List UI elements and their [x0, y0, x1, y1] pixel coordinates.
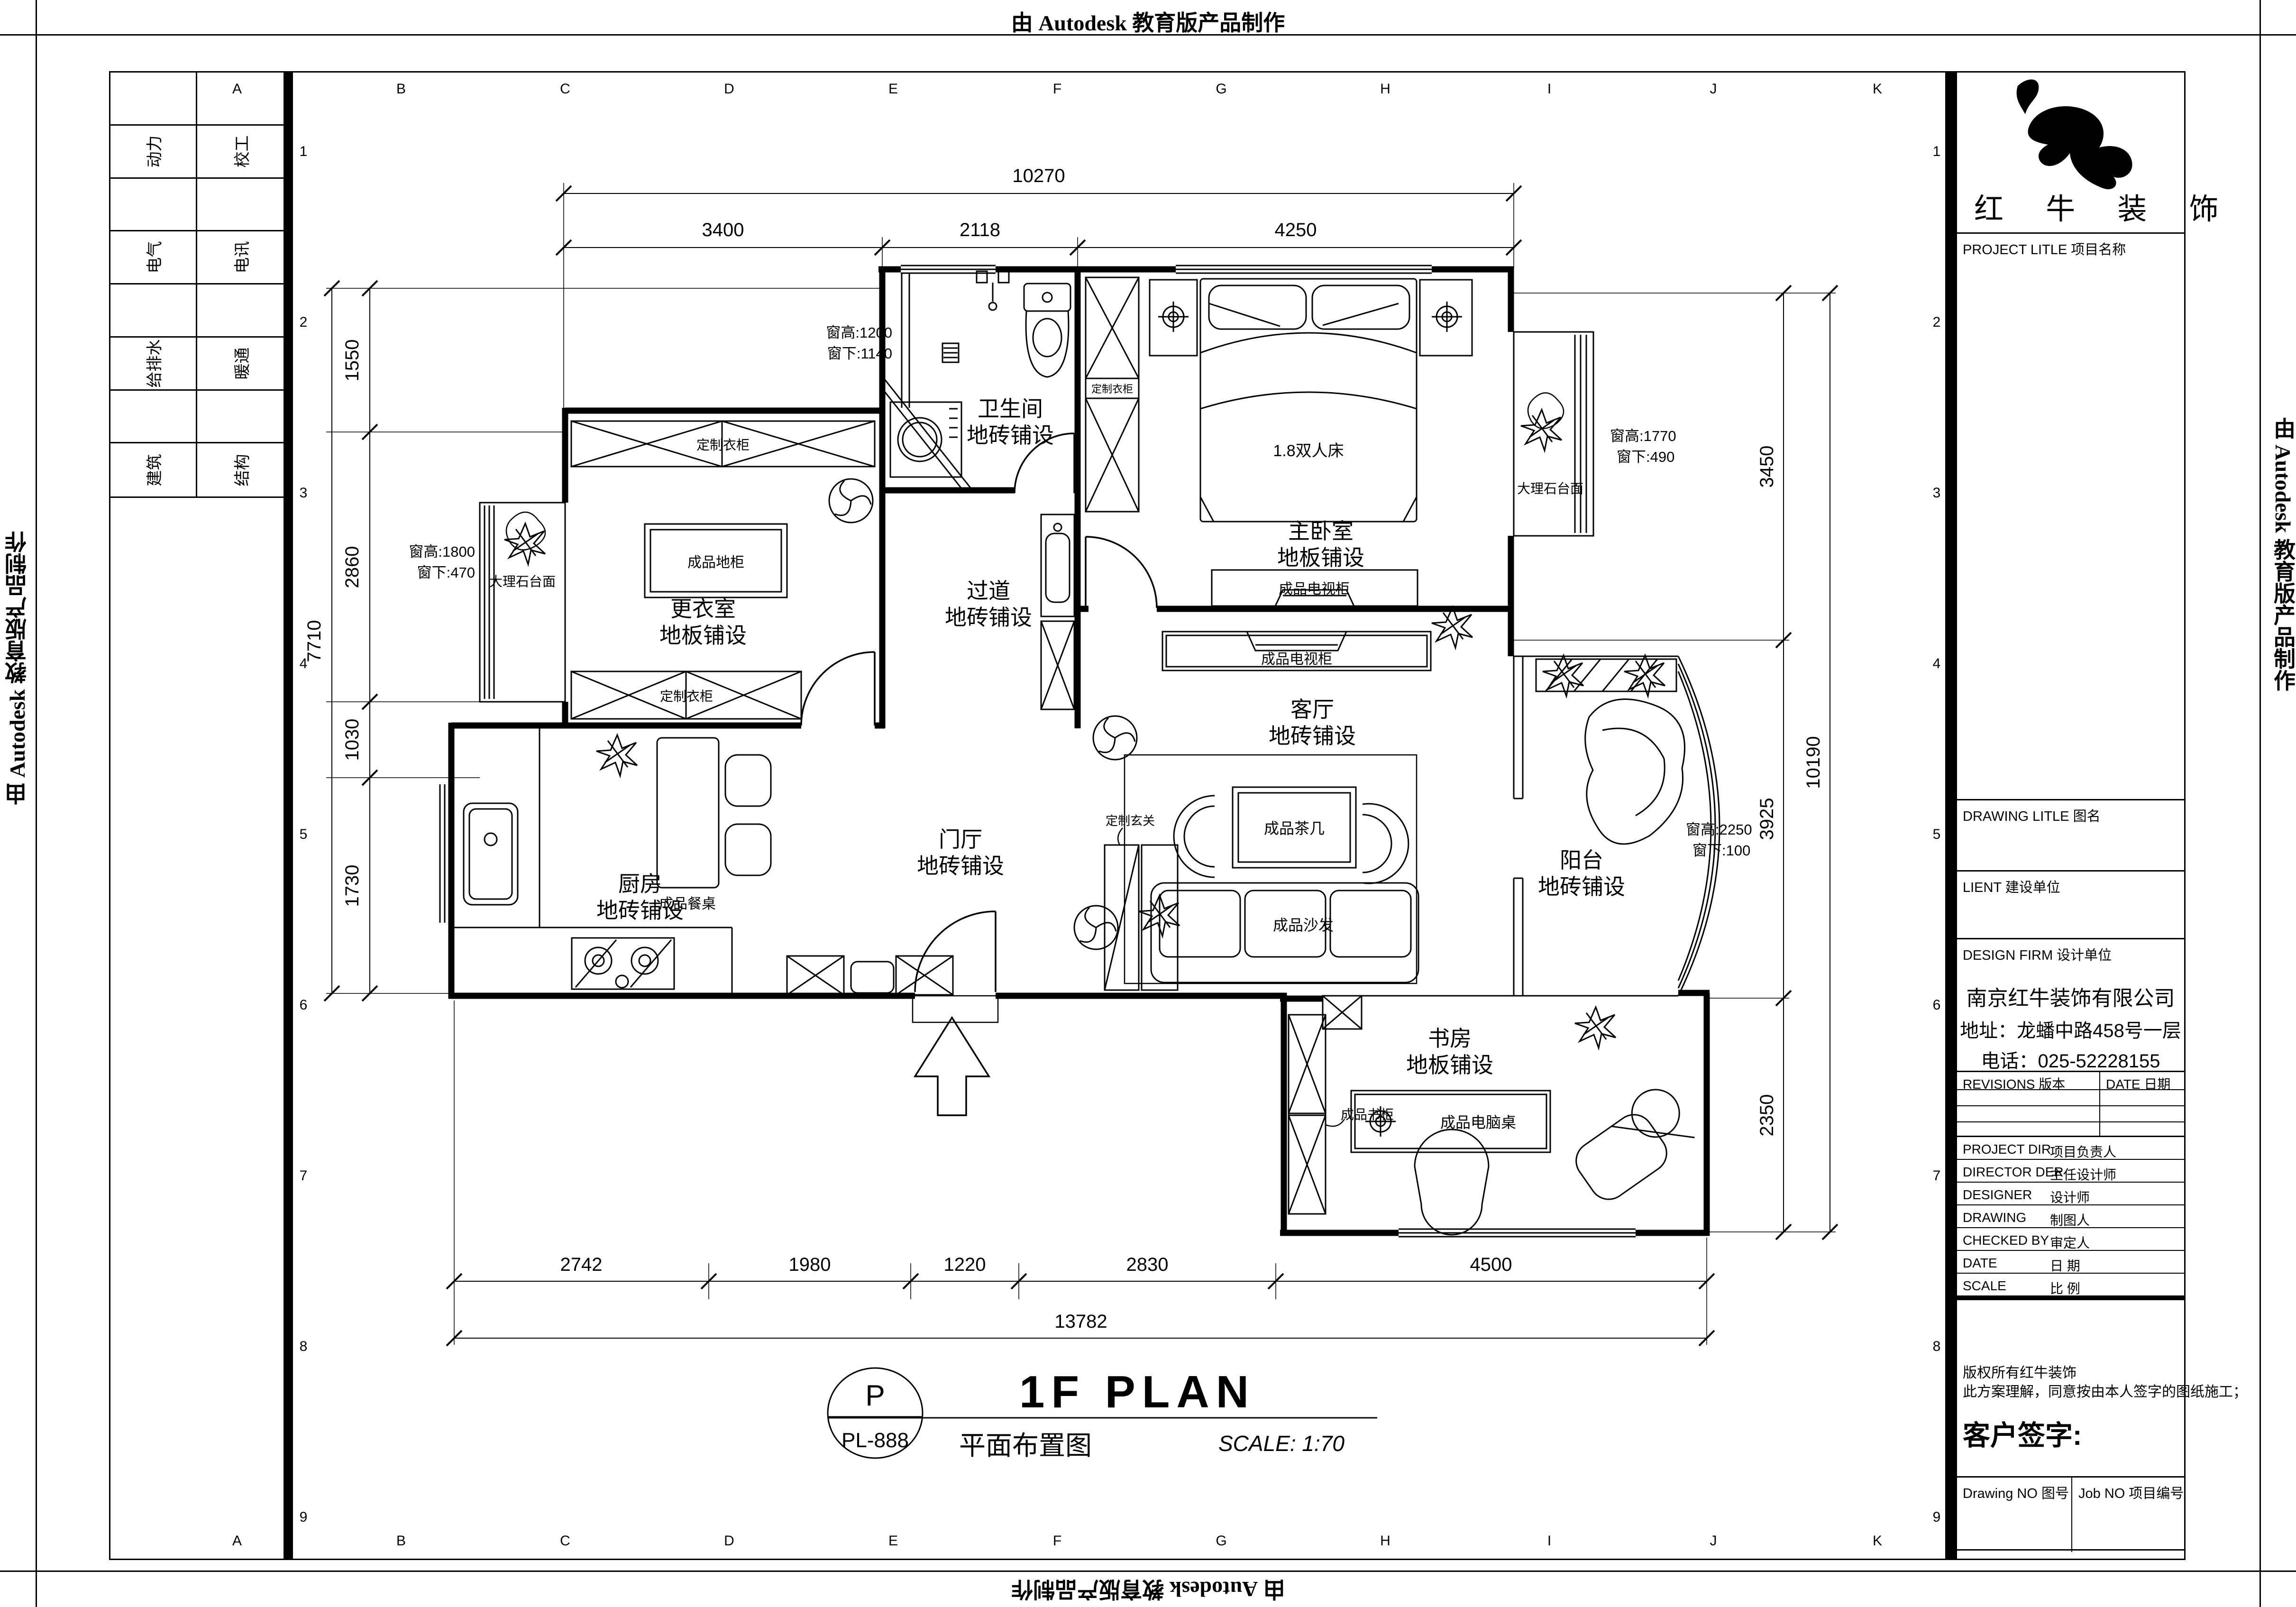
- dim-label: 1220: [944, 1254, 986, 1275]
- room-name: 主卧室: [1288, 519, 1354, 543]
- balcony-door: [1514, 656, 1523, 996]
- kitchen-furniture: [451, 725, 771, 996]
- dim-label: 10190: [1803, 736, 1824, 789]
- window-note: 窗下:100: [1692, 842, 1750, 859]
- furniture-label: 成品书柜: [1341, 1107, 1394, 1122]
- kitchen-window: [440, 784, 449, 923]
- dim-label: 1550: [342, 340, 363, 382]
- lamp-icon: [1432, 302, 1462, 332]
- furniture-label: 成品地柜: [687, 555, 744, 570]
- drawing-title-cn: 平面布置图: [959, 1431, 1092, 1460]
- window-note: 窗下:490: [1617, 449, 1674, 465]
- window-note: 窗高:1770: [1610, 428, 1676, 444]
- room-finish: 地砖铺设: [945, 605, 1032, 630]
- furniture-label: 大理石台面: [1517, 481, 1583, 496]
- window-note: 窗高:1800: [409, 543, 475, 560]
- dimensions-bottom: [454, 1001, 1707, 1345]
- furniture-label: 定制衣柜: [660, 689, 713, 704]
- drawing-title-group: P PL-888 1F PLAN 平面布置图 SCALE: 1:70: [828, 1367, 1377, 1460]
- furniture-label: 成品电脑桌: [1440, 1114, 1516, 1131]
- entry-door: [915, 911, 996, 992]
- dim-label: 1980: [789, 1254, 831, 1275]
- entry-cabinet-leader: [1118, 828, 1123, 845]
- drawing-title-scale: SCALE: 1:70: [1218, 1431, 1345, 1456]
- nightstand-right: [1420, 280, 1472, 356]
- furniture-label: 成品餐桌: [659, 896, 716, 912]
- furniture-label: 定制玄关: [1106, 814, 1155, 828]
- dining-chair: [725, 755, 771, 806]
- dim-label: 3450: [1756, 446, 1777, 488]
- entry-arrow: [915, 1018, 989, 1115]
- dressing-door: [801, 652, 875, 725]
- entry-bench: [851, 962, 894, 993]
- room-finish: 地板铺设: [1406, 1053, 1493, 1077]
- room-name: 书房: [1428, 1026, 1472, 1051]
- bay-window-right: [1514, 332, 1593, 536]
- window-note: 窗高:2250: [1686, 821, 1752, 838]
- window-note: 窗高:1200: [826, 324, 892, 341]
- dimensions-top: [564, 183, 1514, 411]
- furniture-label: 大理石台面: [489, 574, 556, 589]
- bathroom-fixtures: [885, 271, 1070, 488]
- bay-window-left: [480, 503, 565, 702]
- plant-icon: [1521, 410, 1562, 450]
- furniture-label: 定制衣柜: [1091, 383, 1133, 395]
- room-name: 过道: [967, 579, 1010, 603]
- rug: [1125, 755, 1417, 983]
- room-name: 门厅: [939, 827, 982, 852]
- pillow: [1209, 285, 1306, 329]
- furniture-label: 定制衣柜: [696, 438, 750, 452]
- fan-icon: [1074, 906, 1118, 949]
- dining-chair: [725, 824, 771, 875]
- dim-label: 2742: [560, 1254, 603, 1275]
- dim-label: 2350: [1756, 1094, 1777, 1137]
- dim-label: 1730: [342, 865, 363, 907]
- armchair-left: [1174, 796, 1215, 877]
- kitchen-sink: [464, 803, 518, 905]
- corridor-vanity: [1041, 514, 1074, 709]
- dim-label: 2830: [1126, 1254, 1169, 1275]
- lounge-chair: [1585, 699, 1685, 844]
- fan-icon: [1093, 716, 1137, 760]
- furniture-labels: 1.8双人床 定制衣柜 定制衣柜 定制衣柜 成品电视柜 成品电视柜 成品地柜 成…: [489, 383, 1583, 1131]
- title-bubble-letter: P: [865, 1379, 885, 1412]
- desk-chair: [1415, 1129, 1489, 1235]
- dim-label: 2860: [342, 546, 363, 588]
- dim-label: 3925: [1756, 798, 1777, 840]
- fan-icon: [829, 479, 873, 523]
- window-note: 窗下:1140: [827, 345, 892, 362]
- dim-label: 4250: [1275, 220, 1317, 240]
- room-finish: 地砖铺设: [917, 854, 1004, 878]
- room-finish: 地板铺设: [659, 623, 747, 648]
- dim-label: 10270: [1012, 165, 1065, 186]
- room-finish: 地砖铺设: [1269, 724, 1356, 748]
- room-name: 阳台: [1560, 848, 1603, 872]
- study-window: [1399, 1229, 1636, 1237]
- dim-label: 1030: [342, 719, 363, 761]
- furniture-label: 成品沙发: [1273, 917, 1334, 934]
- floor-plan: 10270 3400 2118 4250 7710 1550 2860 1030…: [0, 0, 2296, 1607]
- dim-label: 3400: [702, 220, 744, 240]
- furniture-label: 成品电视柜: [1261, 652, 1332, 667]
- bath-diagonal: [885, 379, 971, 488]
- room-finish: 地砖铺设: [1538, 874, 1625, 899]
- shower-screen: [902, 273, 909, 408]
- bookcase: [1289, 1015, 1326, 1214]
- room-labels: 卫生间 地砖铺设 主卧室 地板铺设 更衣室 地板铺设 过道 地砖铺设 客厅 地砖…: [596, 396, 1625, 1077]
- entry-step: [913, 996, 998, 1022]
- window-note: 窗下:470: [417, 564, 475, 581]
- plant-icon: [1575, 1007, 1616, 1048]
- toilet-bowl: [1026, 311, 1069, 377]
- cad-sheet: 由 Autodesk 教育版产品制作 由 Autodesk 教育版产品制作 由 …: [0, 0, 2296, 1607]
- dim-label: 7710: [304, 620, 325, 662]
- balcony-furniture: [1536, 655, 1685, 844]
- room-name: 厨房: [618, 872, 662, 896]
- dim-label: 13782: [1054, 1311, 1107, 1332]
- furniture-label: 成品电视柜: [1279, 581, 1350, 597]
- drawing-title-main: 1F PLAN: [1019, 1367, 1255, 1417]
- room-finish: 地板铺设: [1277, 545, 1364, 570]
- room-name: 客厅: [1290, 697, 1334, 722]
- plant-icon: [1432, 607, 1473, 648]
- kitchen-counter: [451, 725, 732, 996]
- study-lounge: [1564, 1080, 1702, 1207]
- room-finish: 地砖铺设: [967, 423, 1054, 448]
- pillow: [1312, 285, 1409, 329]
- dim-label: 4500: [1470, 1254, 1512, 1275]
- furniture-label: 1.8双人床: [1273, 442, 1344, 460]
- lamp-icon: [1158, 302, 1189, 332]
- dimensions-left: [326, 288, 882, 993]
- dim-label: 2118: [960, 220, 1000, 240]
- plant-icon: [596, 735, 637, 776]
- toilet-tank: [1024, 284, 1070, 311]
- plant-icon: [1543, 655, 1583, 696]
- bedroom-door: [1086, 537, 1157, 608]
- furniture-label: 成品茶几: [1264, 820, 1325, 837]
- room-name: 更衣室: [670, 597, 736, 621]
- dining-table: [657, 738, 719, 888]
- tv-set: [1247, 632, 1346, 651]
- title-bubble-number: PL-888: [842, 1429, 909, 1452]
- room-name: 卫生间: [978, 396, 1043, 421]
- stove: [572, 938, 674, 989]
